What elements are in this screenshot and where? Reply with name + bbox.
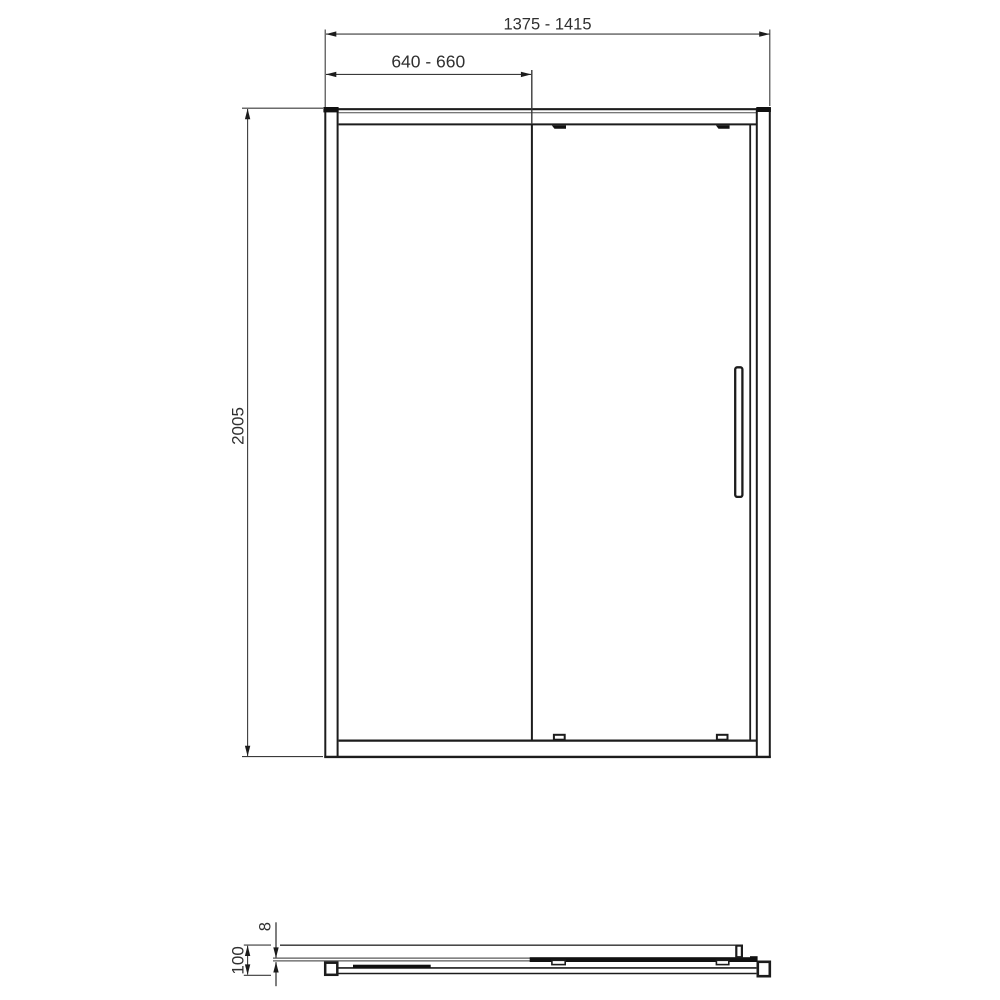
svg-text:8: 8 xyxy=(256,922,274,931)
svg-text:100: 100 xyxy=(228,946,247,974)
svg-text:640 - 660: 640 - 660 xyxy=(391,52,465,72)
svg-text:2005: 2005 xyxy=(228,407,247,445)
svg-text:1375 - 1415: 1375 - 1415 xyxy=(503,15,591,33)
